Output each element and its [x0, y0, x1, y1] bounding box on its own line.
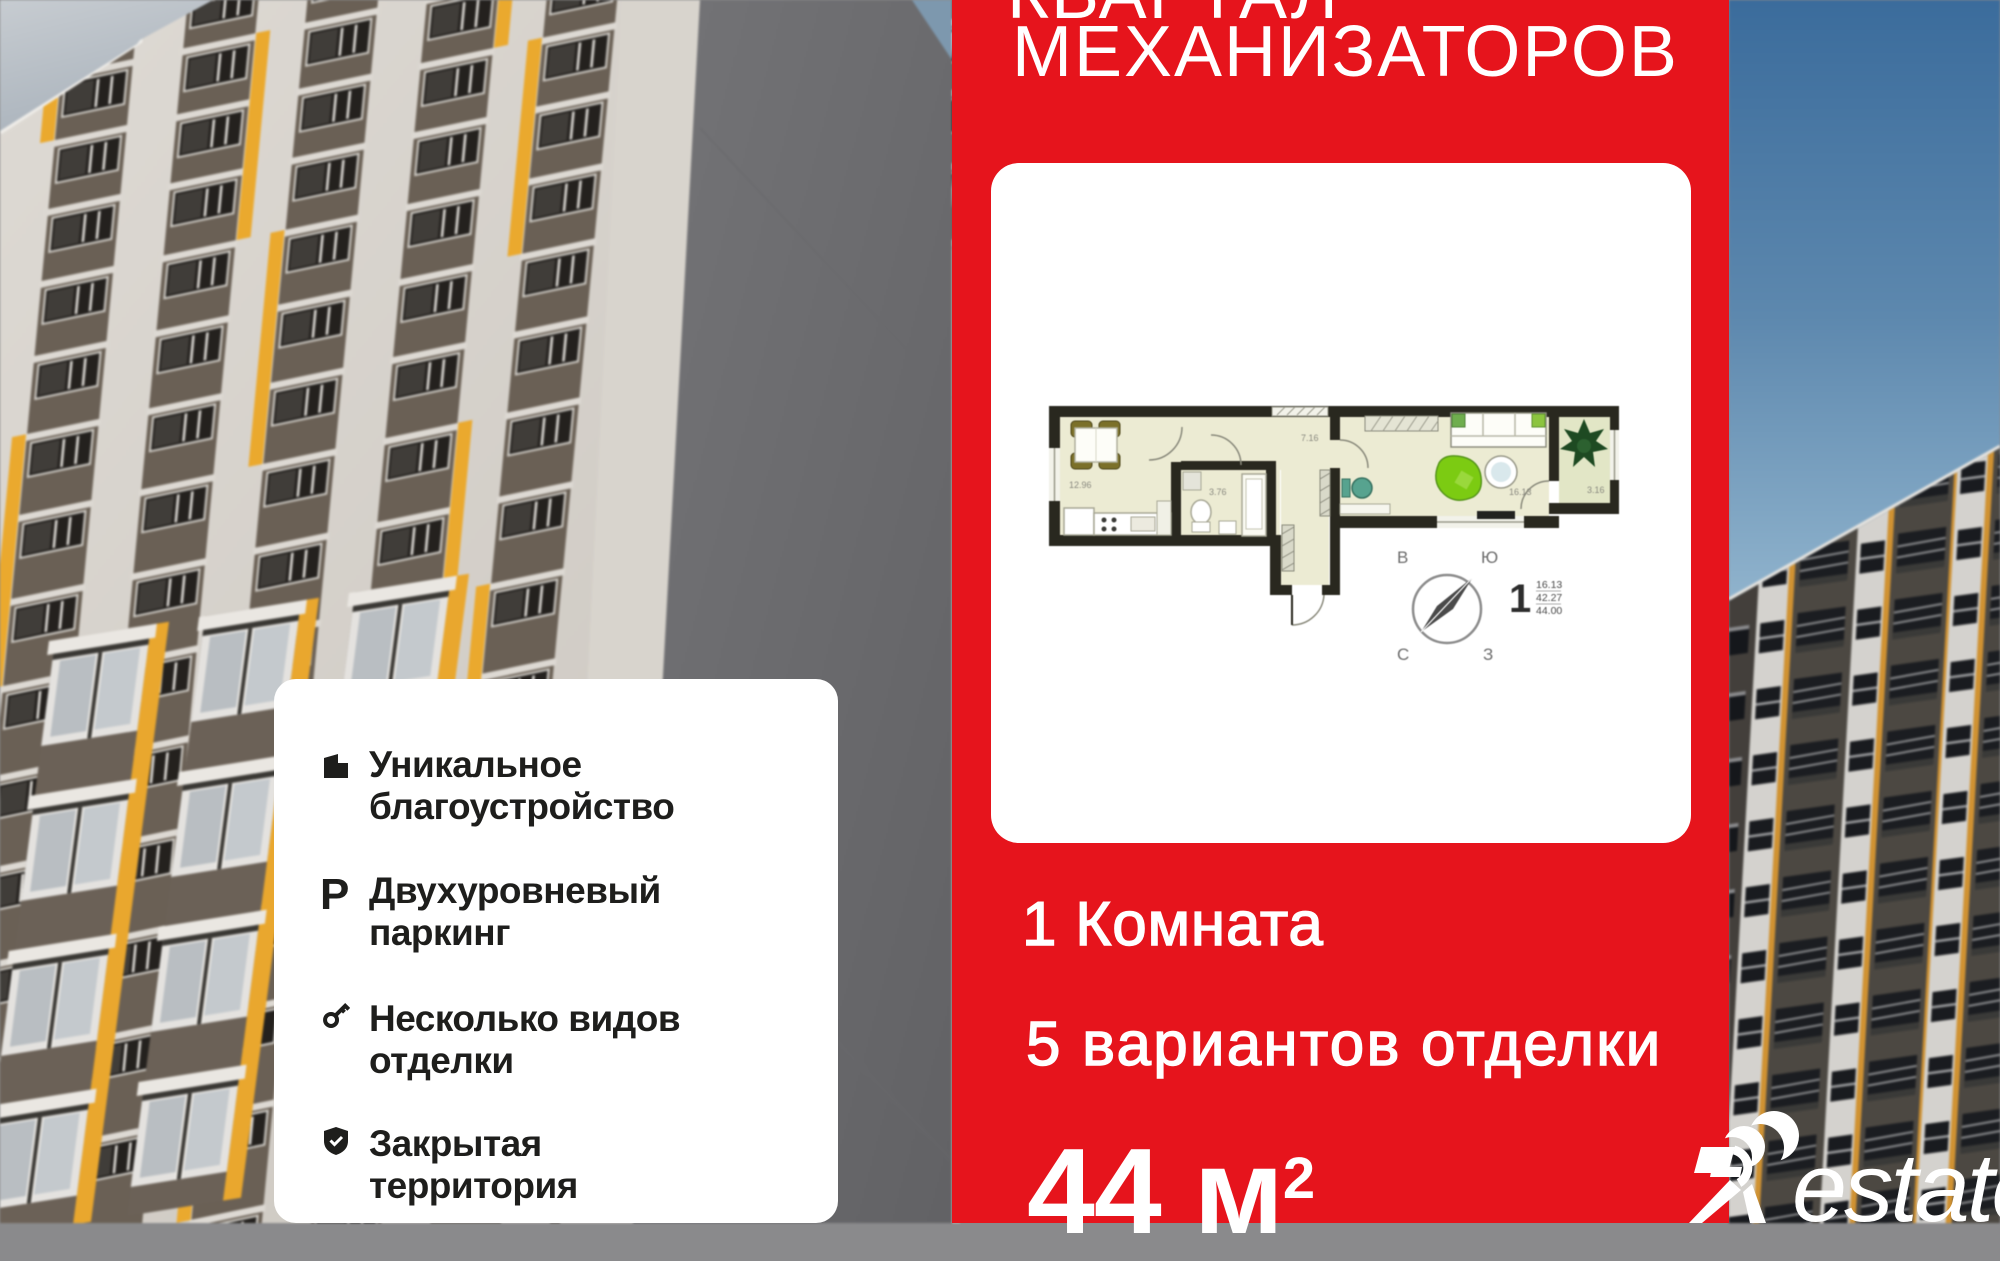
svg-text:Ю: Ю	[1481, 548, 1498, 567]
svg-text:3.76: 3.76	[1209, 487, 1227, 497]
svg-text:16.13: 16.13	[1536, 579, 1562, 591]
svg-text:З: З	[1483, 645, 1493, 664]
svg-text:С: С	[1397, 645, 1409, 664]
svg-text:7.16: 7.16	[1301, 433, 1319, 443]
svg-text:44.00: 44.00	[1536, 605, 1562, 617]
svg-text:12.96: 12.96	[1069, 480, 1092, 490]
svg-text:42.27: 42.27	[1536, 592, 1562, 604]
svg-text:1: 1	[1509, 577, 1531, 621]
svg-text:3.16: 3.16	[1587, 485, 1605, 495]
svg-text:В: В	[1397, 548, 1408, 567]
svg-text:16.13: 16.13	[1509, 487, 1532, 497]
